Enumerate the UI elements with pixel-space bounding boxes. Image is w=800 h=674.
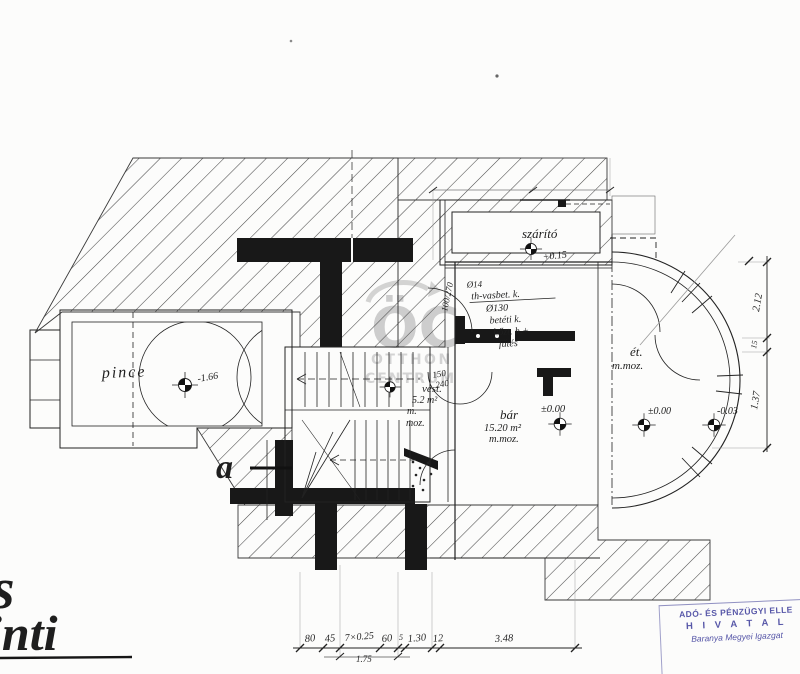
section-letter-a: a [216, 449, 233, 486]
dim-bottom-6: 12 [432, 633, 444, 645]
vest-finish-1: m. [407, 406, 417, 417]
dim-bottom-2: 7×0.25 [344, 630, 374, 644]
et-level-b: -0.03 [717, 406, 738, 417]
dim-bottom-sub: 1.75 [356, 654, 372, 664]
note-line-3: Ø130 [485, 303, 509, 315]
pince-label: pince [101, 363, 147, 382]
bar-label: bár [500, 407, 519, 422]
dim-right-2: 1.37 [749, 390, 763, 411]
et-label: ét. [630, 344, 643, 359]
dim-right-1: 15 [749, 340, 759, 349]
et-level-a: ±0.00 [648, 406, 671, 417]
szarito-label: szárító [522, 226, 558, 241]
vest-area: 5.2 m² [412, 395, 438, 406]
note-line-1: Ø14 [465, 279, 482, 290]
office-stamp: ADÓ- ÉS PÉNZÜGYI ELLE H I V A T A L Bara… [659, 599, 800, 674]
scanned-floor-plan-page: ÖC OTTHON CENTRUM [0, 0, 800, 664]
et-finish: m.moz. [612, 360, 643, 372]
floor-plan-drawing: ÖC OTTHON CENTRUM [0, 0, 800, 664]
handwriting-line-2: inti [0, 605, 58, 661]
dim-bottom-4: 5 [399, 633, 403, 642]
bar-finish: m.moz. [489, 434, 519, 445]
dim-bottom-3: 60 [381, 633, 393, 645]
dim-bottom-7: 3.48 [494, 633, 515, 645]
pince-level: -1.66 [197, 371, 219, 385]
dim-right-0: 2.12 [751, 292, 765, 313]
bar-area: 15.20 m² [484, 423, 522, 434]
dim-bottom-0: 80 [304, 633, 316, 645]
note-line-6: fűtés [499, 338, 519, 350]
watermark-otthon-text: OTTHON [371, 352, 453, 368]
dim-bottom-5: 1.30 [407, 632, 427, 645]
scan-specks [290, 40, 499, 78]
bar-level: ±0.00 [541, 404, 566, 415]
door-swings [420, 284, 700, 485]
note-line-5: hőzt. h.+ [493, 325, 529, 338]
dim-bottom-1: 45 [324, 633, 335, 645]
handwritten-fragment: s inti [0, 556, 132, 661]
vest-finish-2: moz. [406, 418, 425, 429]
note-line-4: betéti k. [489, 314, 521, 327]
